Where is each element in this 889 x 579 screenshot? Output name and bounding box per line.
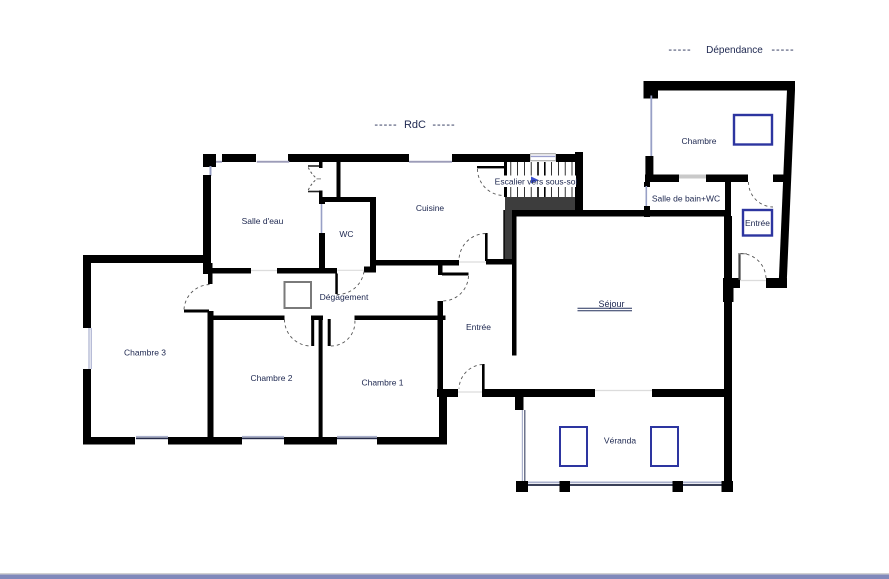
svg-text:Salle de bain+WC: Salle de bain+WC bbox=[652, 194, 720, 204]
svg-text:Chambre: Chambre bbox=[682, 136, 717, 146]
svg-text:Dépendance: Dépendance bbox=[706, 45, 763, 56]
svg-text:Séjour: Séjour bbox=[598, 299, 624, 309]
svg-text:Chambre 3: Chambre 3 bbox=[124, 348, 166, 358]
svg-text:Entrée: Entrée bbox=[745, 218, 770, 228]
svg-text:Dégagement: Dégagement bbox=[320, 292, 369, 302]
svg-text:-----: ----- bbox=[432, 119, 455, 131]
svg-text:-----: ----- bbox=[668, 44, 691, 56]
svg-text:-----: ----- bbox=[771, 44, 794, 56]
svg-text:Entrée: Entrée bbox=[466, 322, 491, 332]
svg-text:Chambre 2: Chambre 2 bbox=[250, 373, 292, 383]
svg-text:Véranda: Véranda bbox=[604, 436, 636, 446]
svg-text:Escalier vers sous-sol: Escalier vers sous-sol bbox=[495, 177, 578, 187]
svg-text:RdC: RdC bbox=[404, 119, 426, 131]
svg-text:-----: ----- bbox=[374, 119, 397, 131]
svg-text:Salle d'eau: Salle d'eau bbox=[242, 216, 284, 226]
svg-text:Chambre 1: Chambre 1 bbox=[361, 378, 403, 388]
svg-text:WC: WC bbox=[339, 229, 353, 239]
svg-text:Cuisine: Cuisine bbox=[416, 203, 445, 213]
